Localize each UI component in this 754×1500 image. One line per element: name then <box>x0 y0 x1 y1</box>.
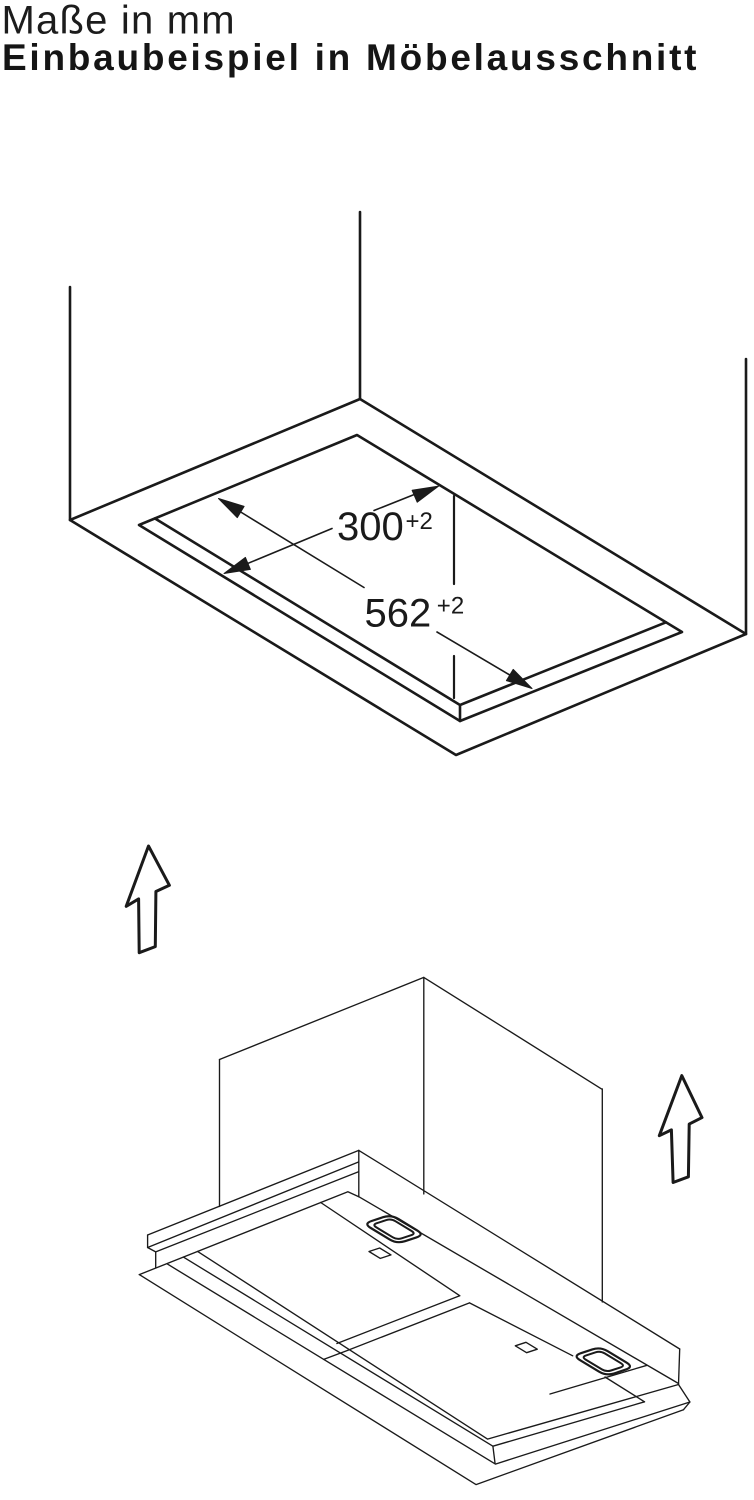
svg-text:+2: +2 <box>406 508 433 535</box>
svg-text:Einbaubeispiel in Möbelausschn: Einbaubeispiel in Möbelausschnitt <box>2 37 699 78</box>
svg-text:+2: +2 <box>437 593 464 620</box>
svg-text:300: 300 <box>337 505 404 549</box>
svg-text:562: 562 <box>365 592 432 636</box>
